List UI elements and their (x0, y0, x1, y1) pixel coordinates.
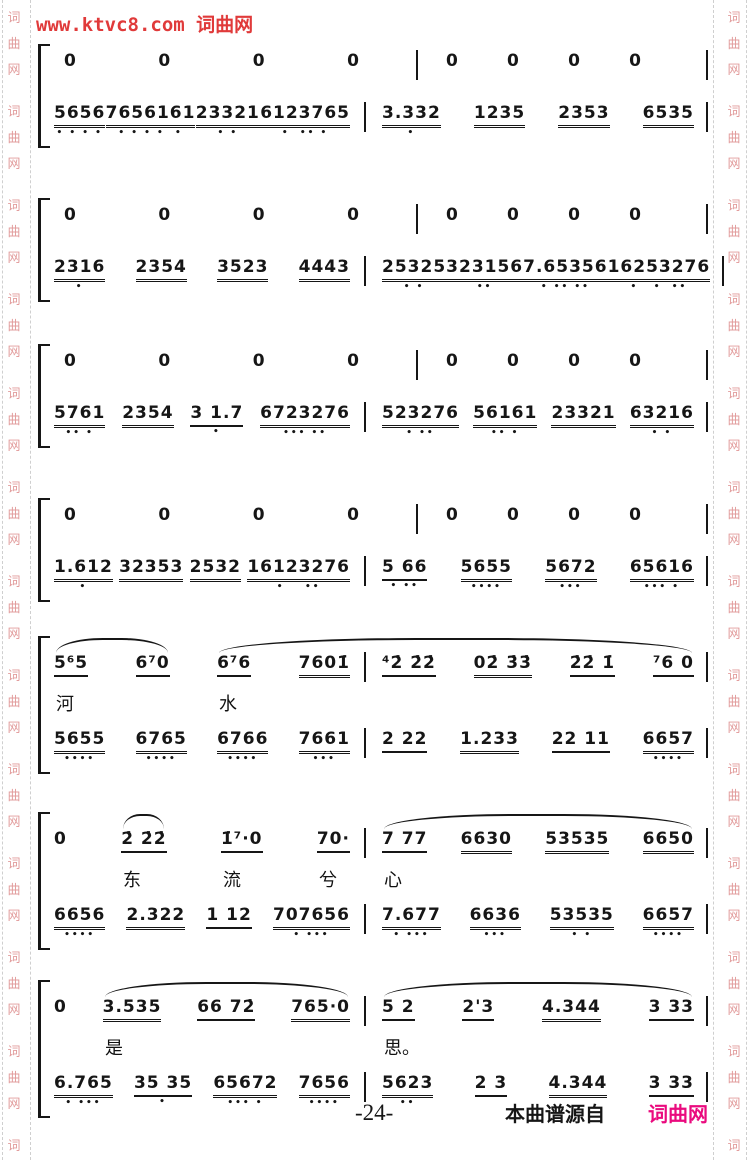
barline (416, 204, 418, 234)
note-digits: 0 (446, 350, 459, 372)
end-barline (706, 652, 708, 682)
note-digits: 323156 (446, 256, 523, 282)
score-system-4: 000000001.612•32353253216123276• ••5 66•… (0, 490, 750, 604)
octave-dots: •••• (227, 756, 258, 763)
note-digits: 65672 (213, 1072, 277, 1098)
system-bracket (38, 44, 50, 148)
note-digits: 5761 (54, 402, 105, 428)
note-group: 23321• • (196, 102, 260, 137)
note-group: 5655•••• (54, 728, 105, 763)
octave-dots: • • (404, 284, 425, 291)
page-number: -24- (355, 1100, 393, 1126)
note-group: 7661••• (299, 728, 350, 763)
end-barline (706, 828, 708, 858)
note-group: 6535 (643, 102, 694, 128)
note-digits: 2354 (136, 256, 187, 282)
lyric-syllable: 兮 (319, 866, 337, 892)
octave-dots: ••• (559, 584, 582, 591)
note-group: 2'3 (462, 996, 494, 1021)
note-digits: 02̇ 3̇3̇ (474, 652, 532, 678)
octave-dots: • (76, 284, 84, 291)
note-group: 3 33 (649, 1072, 694, 1097)
note-group: 5 66• •• (382, 556, 427, 590)
note-group: 32353 (119, 556, 183, 582)
note-group: 6630 (461, 828, 512, 854)
accompaniment-row: 6656••••2.3221 12707656• •••7.677• •••66… (54, 904, 708, 939)
note-digits: 53535 (545, 828, 609, 854)
note-digits: 0 (54, 828, 67, 850)
note-digits: 16253276 (608, 256, 711, 282)
rest-cell: 0 (507, 204, 520, 226)
octave-dots: • • (217, 130, 238, 137)
note-digits: 23321 (196, 102, 260, 128)
barline (364, 256, 366, 286)
barline (416, 50, 418, 80)
note-digits: 6657 (643, 904, 694, 930)
note-group: 2316• (54, 256, 105, 291)
note-digits: 4443 (299, 256, 350, 282)
octave-dots: •• • (491, 430, 519, 437)
octave-dots: • •• (406, 430, 434, 437)
note-group: 5⁶5 (54, 652, 88, 677)
watermark-char: 网 (7, 152, 20, 178)
note-group: 56161•• • (473, 402, 537, 437)
note-group: 6⁷6 (217, 652, 251, 677)
note-digits: 3 33 (649, 996, 694, 1021)
barline (364, 102, 366, 132)
accompaniment-row: 5761•• •23543 1.7•6723276••• ••523276• •… (54, 402, 708, 437)
note-digits: 3.535 (103, 996, 162, 1022)
note-group: 7.677• ••• (382, 904, 441, 939)
note-digits: 0 (253, 50, 266, 72)
note-digits: 0 (158, 504, 171, 526)
note-digits: 1̇⁷·0 (221, 828, 263, 853)
footer-source-site-link[interactable]: 词曲网 (648, 1098, 708, 1127)
note-digits: 1 12 (206, 904, 251, 929)
note-digits: 7 77 (382, 828, 427, 853)
end-barline (706, 996, 708, 1026)
rest-cell: 0 (446, 50, 459, 72)
rest-cell: 0 (629, 50, 642, 72)
rest-cell: 0 (507, 504, 520, 526)
note-digits: 2̇2̇ 1̇ (570, 652, 615, 677)
rest-cell: 0 (629, 350, 642, 372)
watermark-char-group: 词曲网 (727, 1134, 740, 1160)
note-digits: 6723276 (260, 402, 350, 428)
note-digits: 5 2 (382, 996, 415, 1021)
octave-dots: •••• (471, 584, 502, 591)
rest-cell: 0 (64, 350, 77, 372)
note-digits: 2.322 (126, 904, 185, 930)
note-group: 5655•••• (461, 556, 512, 591)
octave-dots: •••• (64, 932, 95, 939)
melody-row: 5⁶56⁷06⁷67601̇⁴2̇ 2̇2̇02̇ 3̇3̇2̇2̇ 1̇⁷6 … (54, 652, 708, 682)
note-digits: 53535 (550, 904, 614, 930)
rest-cell: 0 (568, 204, 581, 226)
note-digits: 65616 (630, 556, 694, 582)
rest-cell: 0 (507, 350, 520, 372)
note-digits: 0 (568, 50, 581, 72)
note-group: 5656• • • • (54, 102, 105, 137)
note-group: 4.344 (549, 1072, 608, 1098)
note-digits: 7656161 (106, 102, 196, 128)
note-digits: 2354 (122, 402, 173, 428)
lyric-syllable: 是 (105, 1034, 123, 1060)
accompaniment-row: 1.612•32353253216123276• ••5 66• ••5655•… (54, 556, 708, 591)
note-digits: 0 (347, 504, 360, 526)
note-group: 6766•••• (217, 728, 268, 763)
note-digits: 0 (568, 350, 581, 372)
note-digits: 23321 (551, 402, 615, 428)
note-digits: 22 11 (552, 728, 610, 753)
end-barline (706, 504, 708, 534)
slur-arc (56, 638, 168, 653)
note-group: 2354 (122, 402, 173, 428)
octave-dots: • ••• (293, 932, 329, 939)
note-group: 53535• • (550, 904, 614, 939)
note-digits: 1235 (474, 102, 525, 128)
watermark-char: 词 (727, 6, 740, 32)
octave-dots: ••• (484, 932, 507, 939)
octave-dots: ••• •• (283, 430, 327, 437)
note-group: 02̇ 3̇3̇ (474, 652, 532, 678)
note-group: 4.344 (542, 996, 601, 1022)
score-system-7: 03.53566 72̇765·05 22'34.3443 336.765• •… (0, 972, 750, 1120)
note-digits: 5⁶5 (54, 652, 88, 677)
rest-cell: 0 (347, 504, 360, 526)
end-barline (706, 204, 708, 234)
note-digits: 0 (629, 350, 642, 372)
note-digits: 5655 (54, 728, 105, 754)
note-digits: 3523 (217, 256, 268, 282)
note-group: 3 1.7• (190, 402, 243, 436)
note-group: 23321 (551, 402, 615, 428)
note-group: 2353 (558, 102, 609, 128)
octave-dots: ••• • (227, 1100, 263, 1107)
octave-dots: • ••• (393, 932, 429, 939)
barline (364, 904, 366, 934)
note-digits: ⁷6 0 (653, 652, 694, 677)
note-digits: 6656 (54, 904, 105, 930)
note-group: 3523 (217, 256, 268, 282)
note-digits: 0 (568, 204, 581, 226)
note-digits: 6535 (643, 102, 694, 128)
note-group: 5672••• (545, 556, 596, 591)
note-group: 6765•••• (136, 728, 187, 763)
rest-cell: 0 (64, 50, 77, 72)
note-group: 2 22 (382, 728, 427, 753)
end-barline (722, 256, 724, 286)
note-digits: 0 (507, 504, 520, 526)
note-digits: 35 35 (134, 1072, 192, 1097)
lyric-syllable: 流 (223, 866, 241, 892)
note-digits: 6636 (470, 904, 521, 930)
note-digits: 0 (446, 204, 459, 226)
note-group: 3.535 (103, 996, 162, 1022)
end-barline (706, 350, 708, 380)
rest-cell: 0 (158, 204, 171, 226)
rest-cell: 0 (507, 50, 520, 72)
note-group: 323156•• (446, 256, 523, 291)
barline (364, 728, 366, 758)
octave-dots: • (213, 429, 221, 436)
note-group: 1.612• (54, 556, 113, 591)
note-group: 66 72̇ (197, 996, 255, 1021)
barline (364, 402, 366, 432)
melody-row: 03.53566 72̇765·05 22'34.3443 33 (54, 996, 708, 1026)
note-digits: 2̇ 2̇2̇ (121, 828, 166, 853)
watermark-char-group: 词曲网 (7, 1134, 20, 1160)
note-digits: 6766 (217, 728, 268, 754)
end-barline (706, 402, 708, 432)
note-digits: 16123276 (247, 556, 350, 582)
header-watermark-link[interactable]: www.ktvc8.com 词曲网 (36, 10, 253, 37)
rest-cell: 0 (446, 504, 459, 526)
note-group: 6636••• (470, 904, 521, 939)
note-digits: 25325 (382, 256, 446, 282)
note-digits: 0 (347, 50, 360, 72)
octave-dots: •••• (146, 756, 177, 763)
octave-dots: • • • • (56, 130, 102, 137)
note-digits: 4.344 (542, 996, 601, 1022)
rest-cell: 0 (253, 204, 266, 226)
note-group: 5 2 (382, 996, 415, 1021)
slur-arc (219, 638, 692, 653)
note-digits: 3.332 (382, 102, 441, 128)
note-group: 7601̇ (299, 652, 350, 678)
note-digits: 7.65356 (523, 256, 607, 282)
note-group: 2354 (136, 256, 187, 282)
system-bracket (38, 812, 50, 950)
note-digits: 765·0 (291, 996, 350, 1022)
note-digits: 0 (507, 350, 520, 372)
lyric-syllable: 思。 (384, 1034, 420, 1060)
note-digits: 0 (629, 50, 642, 72)
note-digits: 0 (629, 504, 642, 526)
note-digits: 1.612 (54, 556, 113, 582)
note-group: 6656•••• (54, 904, 105, 939)
octave-dots: • (159, 1099, 167, 1106)
octave-dots: ••• (313, 756, 336, 763)
melody-row: 00000000 (54, 204, 708, 234)
rest-cell: 0 (568, 50, 581, 72)
note-digits: 2532 (190, 556, 241, 582)
barline (364, 556, 366, 586)
note-digits: 0 (64, 350, 77, 372)
note-digits: 0 (253, 350, 266, 372)
note-digits: 63216 (630, 402, 694, 428)
lyric-syllable: 心 (384, 866, 402, 892)
note-digits: 0 (64, 50, 77, 72)
rest-cell: 0 (347, 50, 360, 72)
barline (364, 828, 366, 858)
rest-cell: 0 (64, 504, 77, 526)
note-digits: 56161 (473, 402, 537, 428)
note-group: 1235 (474, 102, 525, 128)
rest-cell: 0 (158, 504, 171, 526)
score-system-2: 000000002316•23543523444325325• •323156•… (0, 190, 750, 304)
rest-cell: 0 (568, 350, 581, 372)
note-digits: 3 1.7 (190, 402, 243, 427)
octave-dots: • • • • • (118, 130, 182, 137)
melody-row: 00000000 (54, 504, 708, 534)
note-group: 7.65356• •• •• (523, 256, 607, 291)
note-group: 7656161• • • • • (106, 102, 196, 137)
octave-dots: • ••• (65, 1100, 101, 1107)
rest-cell: 0 (347, 204, 360, 226)
note-digits: 0 (507, 204, 520, 226)
note-group: 5761•• • (54, 402, 105, 437)
note-group: 2.322 (126, 904, 185, 930)
melody-row: 00000000 (54, 350, 708, 380)
octave-dots: •••• (653, 756, 684, 763)
note-group: 6650 (643, 828, 694, 854)
rest-cell: 0 (347, 350, 360, 372)
note-digits: ⁴2̇ 2̇2̇ (382, 652, 436, 677)
note-digits: 6⁷0 (136, 652, 170, 677)
system-bracket (38, 344, 50, 448)
note-digits: 0 (347, 204, 360, 226)
note-group: 523276• •• (382, 402, 459, 437)
note-digits: 5655 (461, 556, 512, 582)
note-digits: 6.765 (54, 1072, 113, 1098)
watermark-char: 词 (727, 1134, 740, 1160)
note-digits: 0 (158, 204, 171, 226)
note-group: 63216• • (630, 402, 694, 437)
end-barline (706, 904, 708, 934)
note-group: 16253276• • •• (608, 256, 711, 291)
note-digits: 0 (446, 50, 459, 72)
note-group: 6723276••• •• (260, 402, 350, 437)
octave-dots: • • (652, 430, 673, 437)
rest-cell: 0 (253, 504, 266, 526)
note-digits: 0 (253, 204, 266, 226)
barline (364, 1072, 366, 1102)
lyric-syllable: 河 (56, 690, 74, 716)
rest-cell: 0 (629, 204, 642, 226)
note-digits: 7.677 (382, 904, 441, 930)
note-group: ⁷6 0 (653, 652, 694, 677)
note-digits: 0 (64, 204, 77, 226)
watermark-char: 网 (727, 152, 740, 178)
note-digits: 70· (317, 828, 350, 853)
note-group: 70· (317, 828, 350, 853)
note-group: 3 33 (649, 996, 694, 1021)
score-system-5: 5⁶56⁷06⁷67601̇⁴2̇ 2̇2̇02̇ 3̇3̇2̇2̇ 1̇⁷6 … (0, 628, 750, 776)
system-bracket (38, 636, 50, 774)
note-digits: 7661 (299, 728, 350, 754)
barline (364, 652, 366, 682)
rest-cell: 0 (253, 350, 266, 372)
octave-dots: • (80, 584, 88, 591)
note-digits: 0 (347, 350, 360, 372)
rest-cell: 0 (629, 504, 642, 526)
note-digits: 5 66 (382, 556, 427, 581)
note-group: 35 35• (134, 1072, 192, 1106)
note-digits: 0 (568, 504, 581, 526)
note-group: 765·0 (291, 996, 350, 1022)
score-system-3: 000000005761•• •23543 1.7•6723276••• ••5… (0, 336, 750, 450)
note-group: 1̇⁷·0 (221, 828, 263, 853)
note-digits: 0 (158, 50, 171, 72)
note-digits: 6123765 (260, 102, 350, 128)
slur-arc (384, 814, 692, 829)
note-group: ⁴2̇ 2̇2̇ (382, 652, 436, 677)
note-digits: 0 (54, 996, 67, 1018)
note-group: 2 3 (475, 1072, 508, 1097)
note-digits: 0 (158, 350, 171, 372)
note-digits: 7656 (299, 1072, 350, 1098)
slur-arc (105, 982, 348, 997)
end-barline (706, 102, 708, 132)
note-digits: 523276 (382, 402, 459, 428)
note-digits: 707656 (273, 904, 350, 930)
note-digits: 2353 (558, 102, 609, 128)
rest-cell: 0 (568, 504, 581, 526)
system-bracket (38, 980, 50, 1118)
rest-cell: 0 (446, 350, 459, 372)
note-group: 25325• • (382, 256, 446, 291)
note-group: 3.332• (382, 102, 441, 137)
note-digits: 3 33 (649, 1072, 694, 1097)
system-bracket (38, 198, 50, 302)
octave-dots: • • (571, 932, 592, 939)
watermark-char: 词 (7, 1134, 20, 1160)
note-digits: 6630 (461, 828, 512, 854)
octave-dots: • •• (391, 583, 419, 590)
note-group: 2̇ 2̇2̇ (121, 828, 166, 853)
note-digits: 1.233 (460, 728, 519, 754)
octave-dots: ••• • (644, 584, 680, 591)
rest-cell: 0 (253, 50, 266, 72)
rest-cell: 0 (158, 50, 171, 72)
octave-dots: •••• (309, 1100, 340, 1107)
barline (416, 350, 418, 380)
note-group: 1.233 (460, 728, 519, 754)
octave-dots: • •• (277, 584, 321, 591)
note-digits: 0 (629, 204, 642, 226)
watermark-char: 词 (7, 6, 20, 32)
note-digits: 6650 (643, 828, 694, 854)
octave-dots: •• (400, 1100, 416, 1107)
score-system-6: 02̇ 2̇2̇1̇⁷·070·7 7766305353566506656•••… (0, 804, 750, 952)
note-digits: 66 72̇ (197, 996, 255, 1021)
note-group: 6657•••• (643, 728, 694, 763)
note-digits: 2316 (54, 256, 105, 282)
note-group: 707656• ••• (273, 904, 350, 939)
accompaniment-row: 2316•23543523444325325• •323156••7.65356… (54, 256, 708, 291)
note-group: 65672••• • (213, 1072, 277, 1107)
note-group: 16123276• •• (247, 556, 350, 591)
octave-dots: • •• • (282, 130, 328, 137)
note-digits: 32353 (119, 556, 183, 582)
note-group: 22 11 (552, 728, 610, 753)
rest-cell: 0 (54, 828, 67, 850)
octave-dots: • (408, 130, 416, 137)
accompaniment-row: 5656• • • •7656161• • • • •23321• •61237… (54, 102, 708, 137)
note-digits: 0 (446, 504, 459, 526)
note-digits: 7601̇ (299, 652, 350, 678)
note-group: 6123765• •• • (260, 102, 350, 137)
rest-cell: 0 (158, 350, 171, 372)
system-bracket (38, 498, 50, 602)
note-group: 4443 (299, 256, 350, 282)
octave-dots: •••• (653, 932, 684, 939)
accompaniment-row: 5655••••6765••••6766••••7661•••2 221.233… (54, 728, 708, 763)
note-digits: 5672 (545, 556, 596, 582)
end-barline (706, 728, 708, 758)
lyric-syllable: 东 (123, 866, 141, 892)
